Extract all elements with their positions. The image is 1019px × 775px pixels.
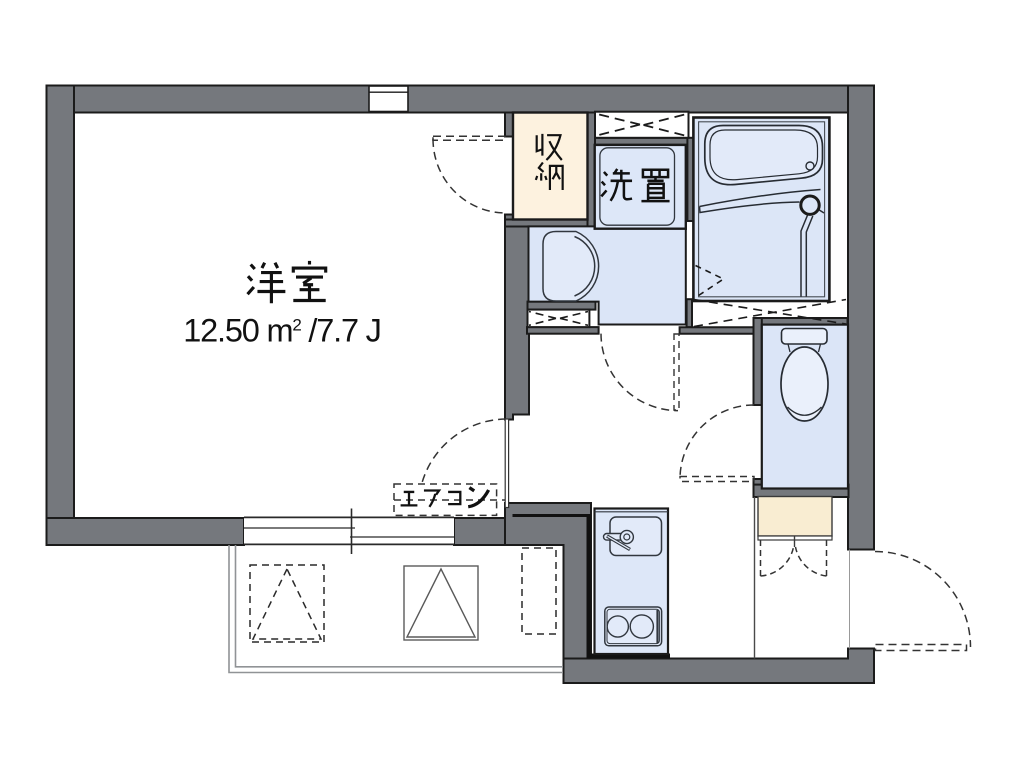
svg-text:12.50 m2 /7.7 J: 12.50 m2 /7.7 J	[183, 313, 380, 349]
